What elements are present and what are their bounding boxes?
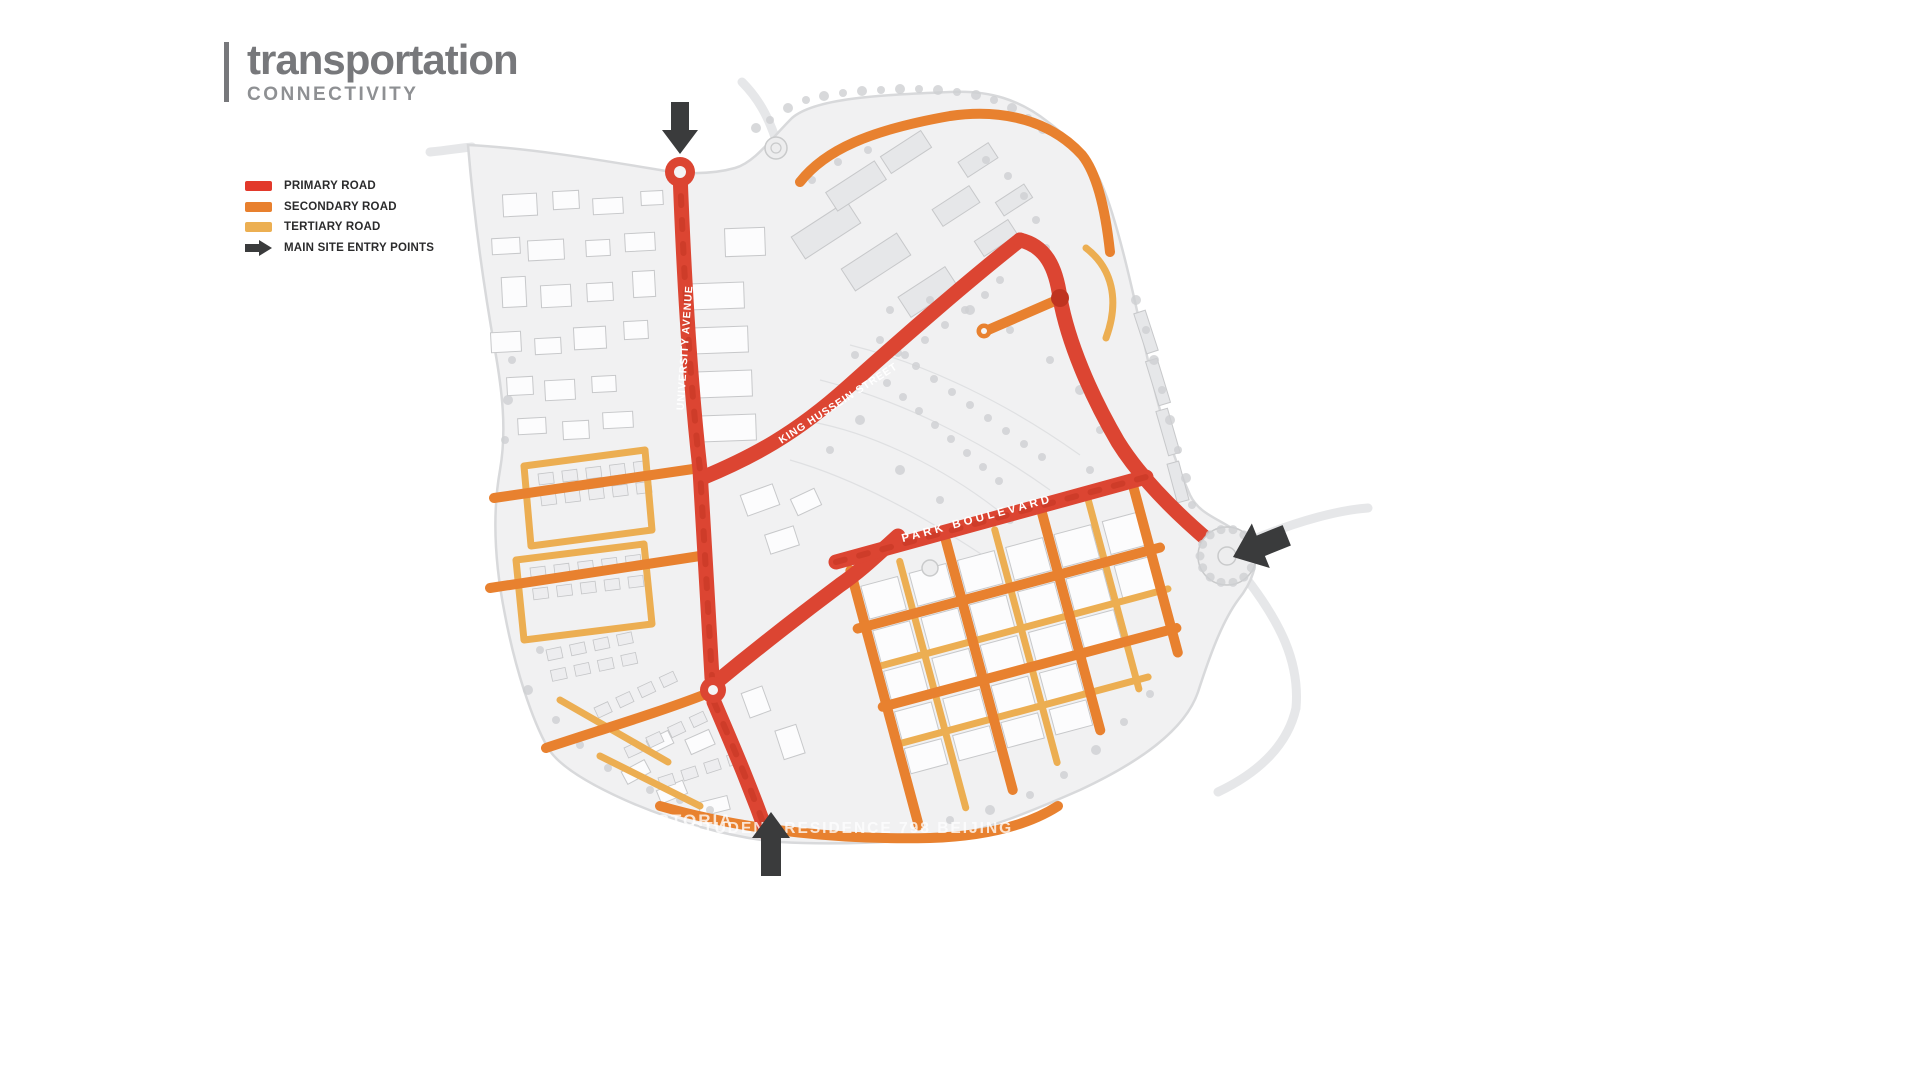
site-plan-map: UNIVERSITY AVENUE KING HUSSEIN STREET PA… [0,0,1920,1080]
east-loop-junction [1051,289,1069,307]
park-plaza-circle [922,560,938,576]
watermark-right: STUDENT RESIDENCE 798 BEIJING [691,820,1013,837]
gray-roundabout-north [765,137,787,159]
transportation-connectivity-slide: transportation CONNECTIVITY PRIMARY ROAD… [0,0,1920,1080]
north-entry-arrow [662,102,698,154]
